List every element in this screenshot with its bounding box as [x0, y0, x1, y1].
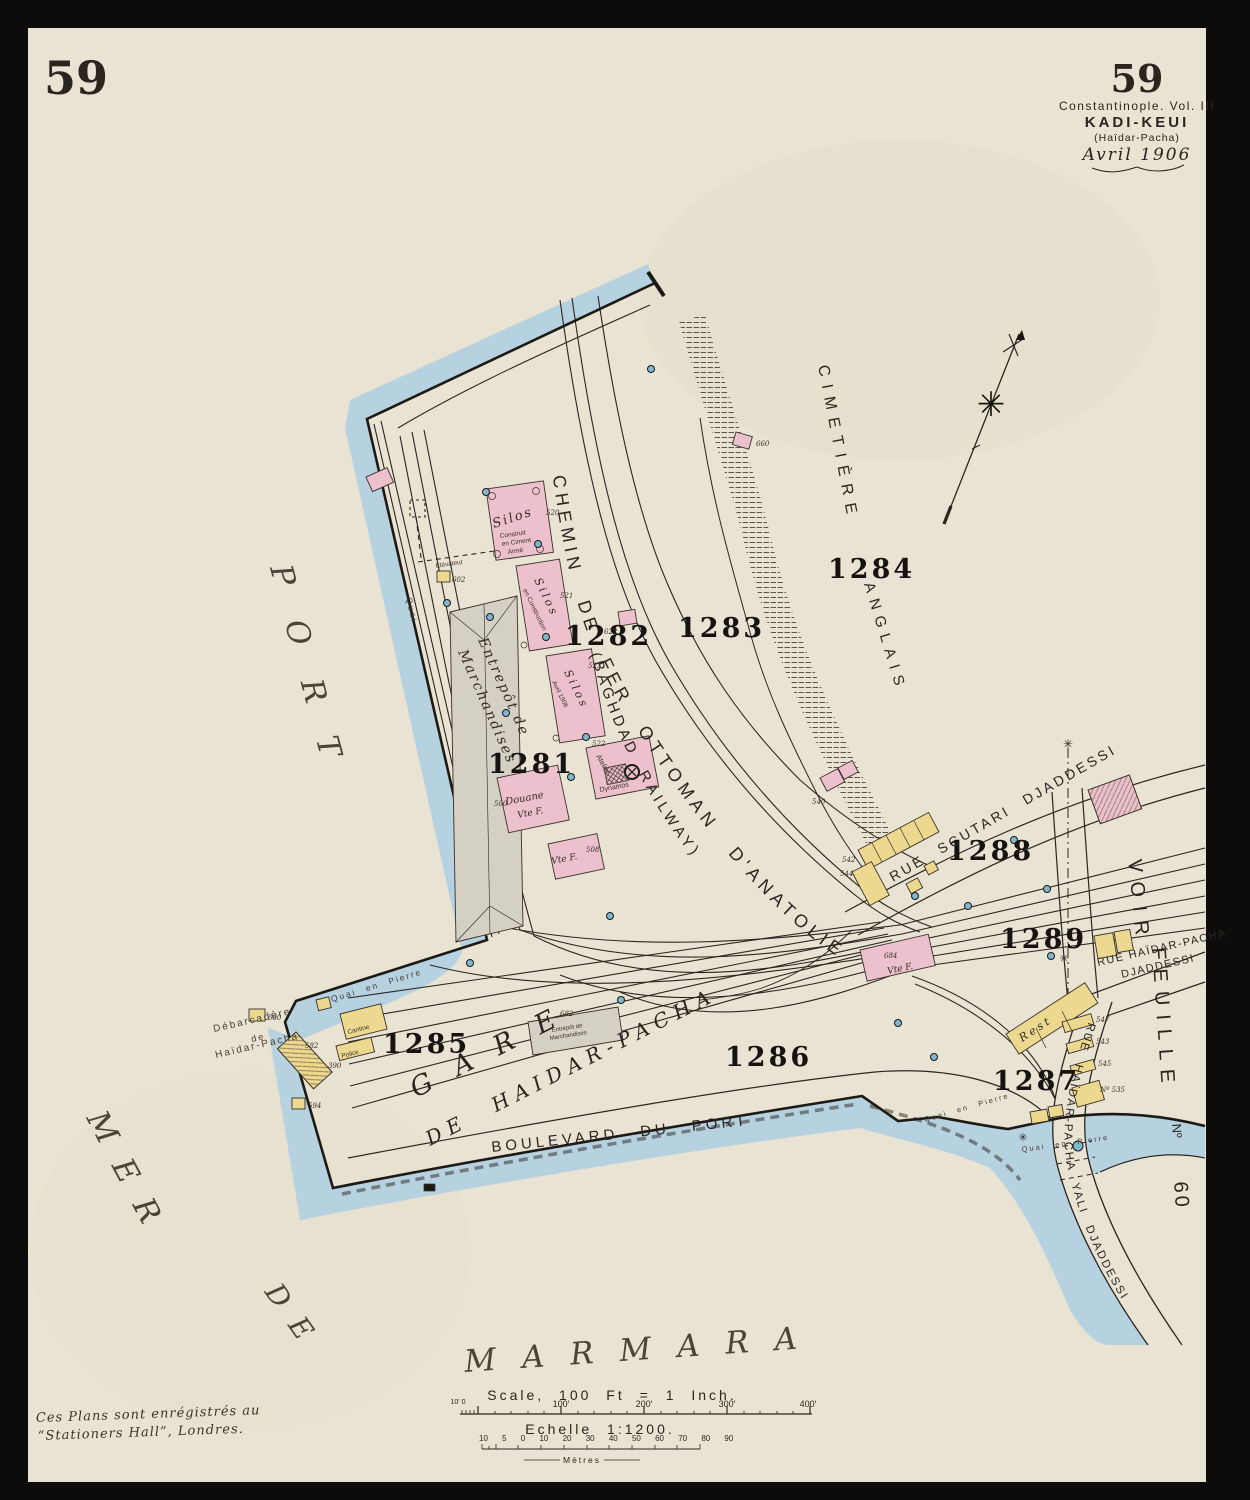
- hydrant-dot: [648, 366, 655, 373]
- feet-100-label: 100′: [553, 1399, 570, 1409]
- hydrant-dot: [487, 614, 494, 621]
- elevator-yellow-hut-602: [437, 571, 450, 582]
- hydrant-dot: [607, 913, 614, 920]
- number-540: 540: [812, 798, 826, 806]
- hydrant-dot: [931, 1054, 938, 1061]
- title-volume: Constantinople. Vol. III: [1059, 99, 1215, 113]
- feet-300-label: 300′: [719, 1399, 736, 1409]
- hydrant-dot: [618, 997, 625, 1004]
- number-682: 682: [560, 1010, 574, 1018]
- block-number-1284: 1284: [828, 554, 915, 585]
- metric-tick-labels: 10 5 0 10 20 30 40 50 60 70 80 90: [479, 1434, 734, 1443]
- number-582: 582: [305, 1042, 319, 1050]
- hydrant-dot: [1044, 886, 1051, 893]
- number-547: 547: [1096, 1016, 1110, 1024]
- number-520: 520: [546, 509, 560, 517]
- hydrant-dot: [583, 734, 590, 741]
- boundary-mark-icon: ✳: [1018, 1132, 1027, 1144]
- bridge-hut-b: [1048, 1105, 1064, 1118]
- sheet-number-left: 59: [44, 51, 108, 105]
- number-594: 594: [308, 1102, 321, 1110]
- hydrant-dot: [535, 541, 542, 548]
- compass-star-icon: ✳: [977, 386, 1006, 424]
- hydrant-dot: [483, 489, 490, 496]
- feet-400-label: 400′: [800, 1399, 817, 1409]
- scale-english-label: Scale, 100 Ft = 1 Inch.: [487, 1387, 736, 1403]
- hydrant-dot: [912, 893, 919, 900]
- boundary-mark-icon: ✳: [1063, 737, 1073, 751]
- number-508: 508: [586, 846, 600, 854]
- title-date: Avril 1906: [1081, 145, 1192, 165]
- metres-label: Mètres: [563, 1455, 601, 1465]
- number-602: 602: [452, 576, 466, 584]
- map-sheet: ✳ ✳ ✳ ✳ 59 59 Constantinople. Vol. III K…: [0, 0, 1250, 1500]
- block-number-1289: 1289: [1000, 924, 1087, 955]
- hydrant-dot: [543, 634, 550, 641]
- number-522: 522: [592, 740, 606, 748]
- number-660: 660: [756, 440, 770, 448]
- quay-signal-box: [424, 1184, 435, 1191]
- feet-zero-label: 10′ 0: [451, 1399, 466, 1406]
- hydrant-dot: [965, 903, 972, 910]
- number-535: Nº 535: [1099, 1086, 1126, 1094]
- number-523: 523: [588, 662, 602, 670]
- title-haidar-pacha: (Haïdar-Pacha): [1094, 132, 1180, 144]
- bridge-hut-a: [1030, 1109, 1049, 1124]
- hydrant-dot: [444, 600, 451, 607]
- number-544: 544: [840, 870, 853, 878]
- hydrant-dot: [467, 960, 474, 967]
- number-622: 622: [604, 628, 618, 636]
- number-545: 545: [1098, 1060, 1112, 1068]
- number-521: 521: [560, 592, 573, 600]
- sanborn-map-svg: ✳ ✳ ✳ ✳ 59 59 Constantinople. Vol. III K…: [0, 0, 1250, 1500]
- title-kadi-keui: KADI-KEUI: [1085, 114, 1190, 131]
- sheet-number-right: 59: [1111, 56, 1164, 101]
- hydrant-dot: [895, 1020, 902, 1027]
- feet-200-label: 200′: [636, 1399, 653, 1409]
- number-390: 390: [328, 1062, 342, 1070]
- number-542: 542: [842, 856, 856, 864]
- block-number-1286: 1286: [725, 1042, 812, 1073]
- number-684: 684: [884, 952, 897, 960]
- number-580: 580: [268, 1014, 282, 1022]
- label-feuille-60: 60: [1169, 1181, 1193, 1211]
- number-543: 543: [1096, 1038, 1110, 1046]
- block-number-1283: 1283: [678, 613, 765, 644]
- building-594: [292, 1098, 305, 1109]
- label-feuille-no: Nº: [1169, 1123, 1185, 1138]
